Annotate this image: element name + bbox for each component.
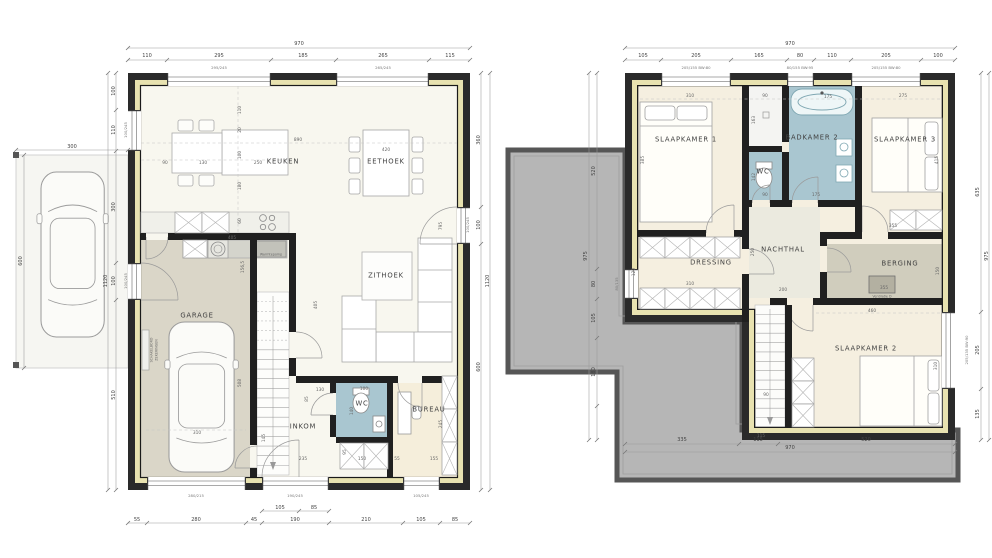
floorplan-canvas: KEUKENEETHOEKZITHOEKGARAGEINKOMWCBUREAU9… bbox=[0, 0, 992, 558]
car-garage bbox=[165, 322, 239, 472]
ground-floor-plan bbox=[135, 80, 464, 484]
dining-table bbox=[349, 130, 423, 196]
coffee-table bbox=[362, 252, 412, 300]
toilet bbox=[353, 388, 369, 413]
bed-slaapkamer-2 bbox=[860, 356, 942, 426]
washing-machine bbox=[208, 240, 228, 258]
bed-slaapkamer-1 bbox=[640, 102, 712, 222]
car-driveway bbox=[37, 172, 108, 337]
bathtub bbox=[791, 89, 853, 115]
post bbox=[13, 152, 19, 158]
electrical-panel bbox=[142, 330, 149, 370]
hand-basin bbox=[373, 416, 385, 432]
ventilation-unit bbox=[869, 276, 895, 293]
floorplan-drawing bbox=[0, 0, 992, 558]
shower-floor bbox=[749, 86, 782, 146]
bed-slaapkamer-3 bbox=[872, 118, 942, 192]
toilet-upper bbox=[756, 162, 772, 188]
post bbox=[13, 362, 19, 368]
driveway bbox=[13, 152, 128, 368]
hall-floor bbox=[749, 207, 820, 298]
heat-pump bbox=[256, 241, 286, 257]
